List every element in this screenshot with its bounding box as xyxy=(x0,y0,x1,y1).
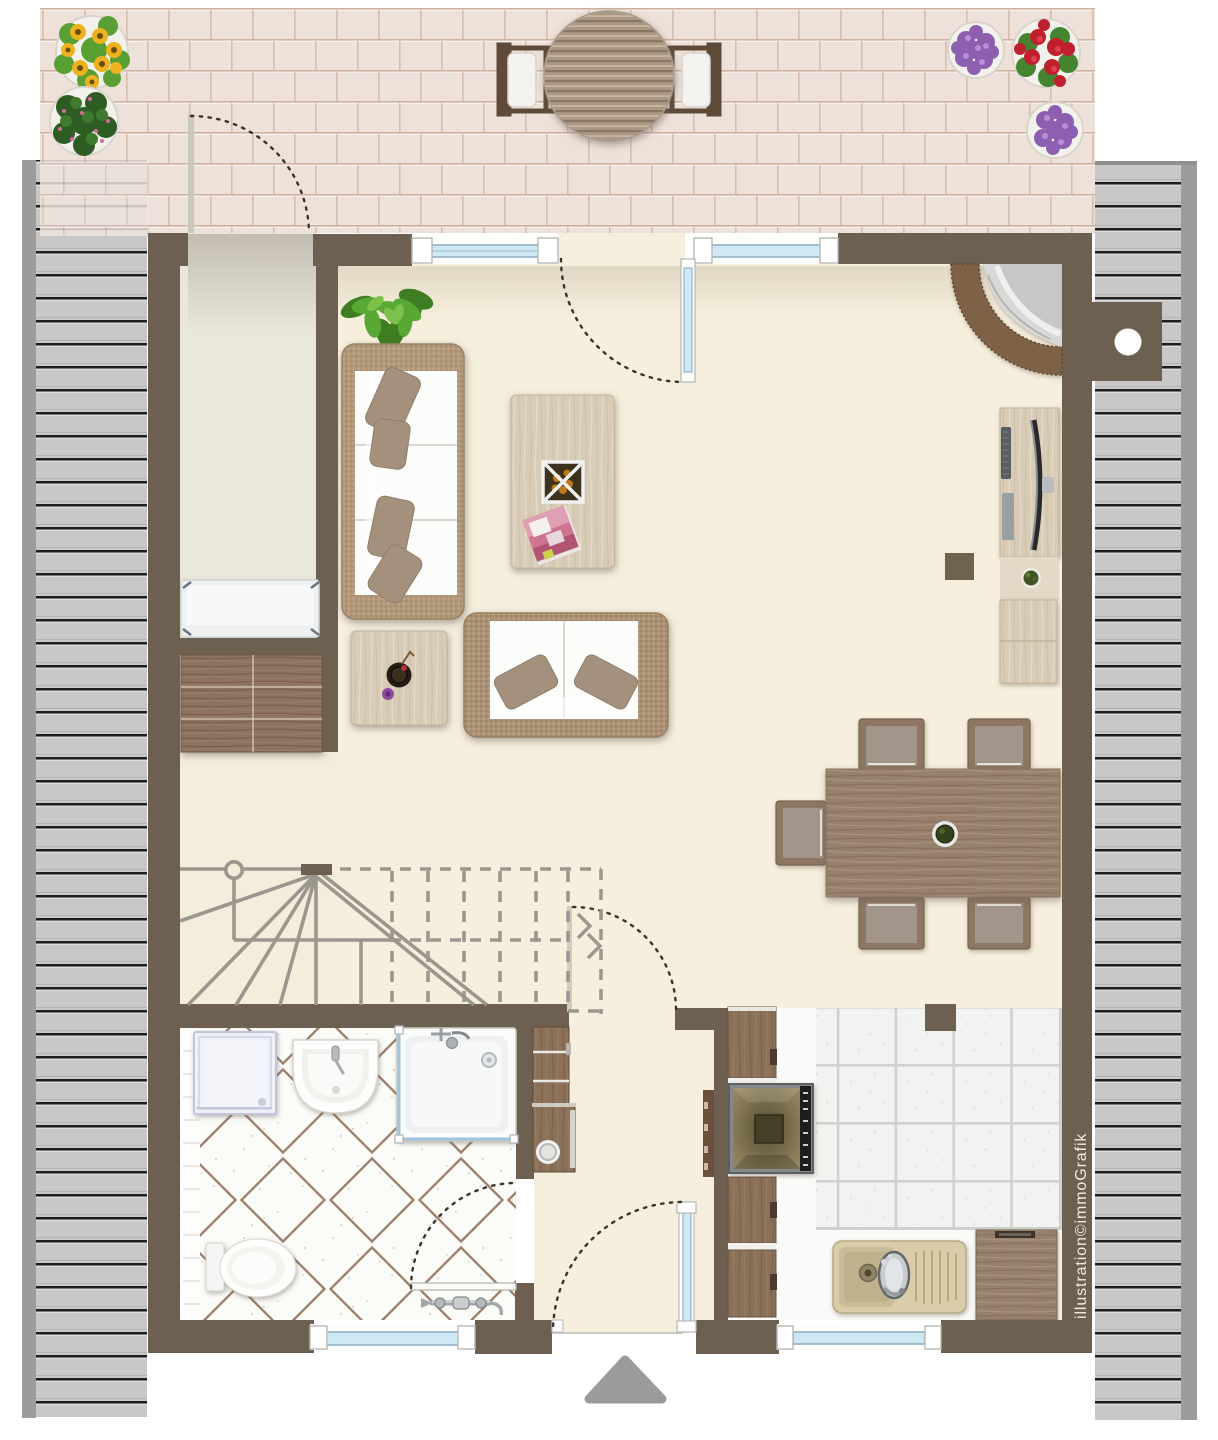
svg-text:illustration©immoGrafik: illustration©immoGrafik xyxy=(1073,1133,1090,1319)
